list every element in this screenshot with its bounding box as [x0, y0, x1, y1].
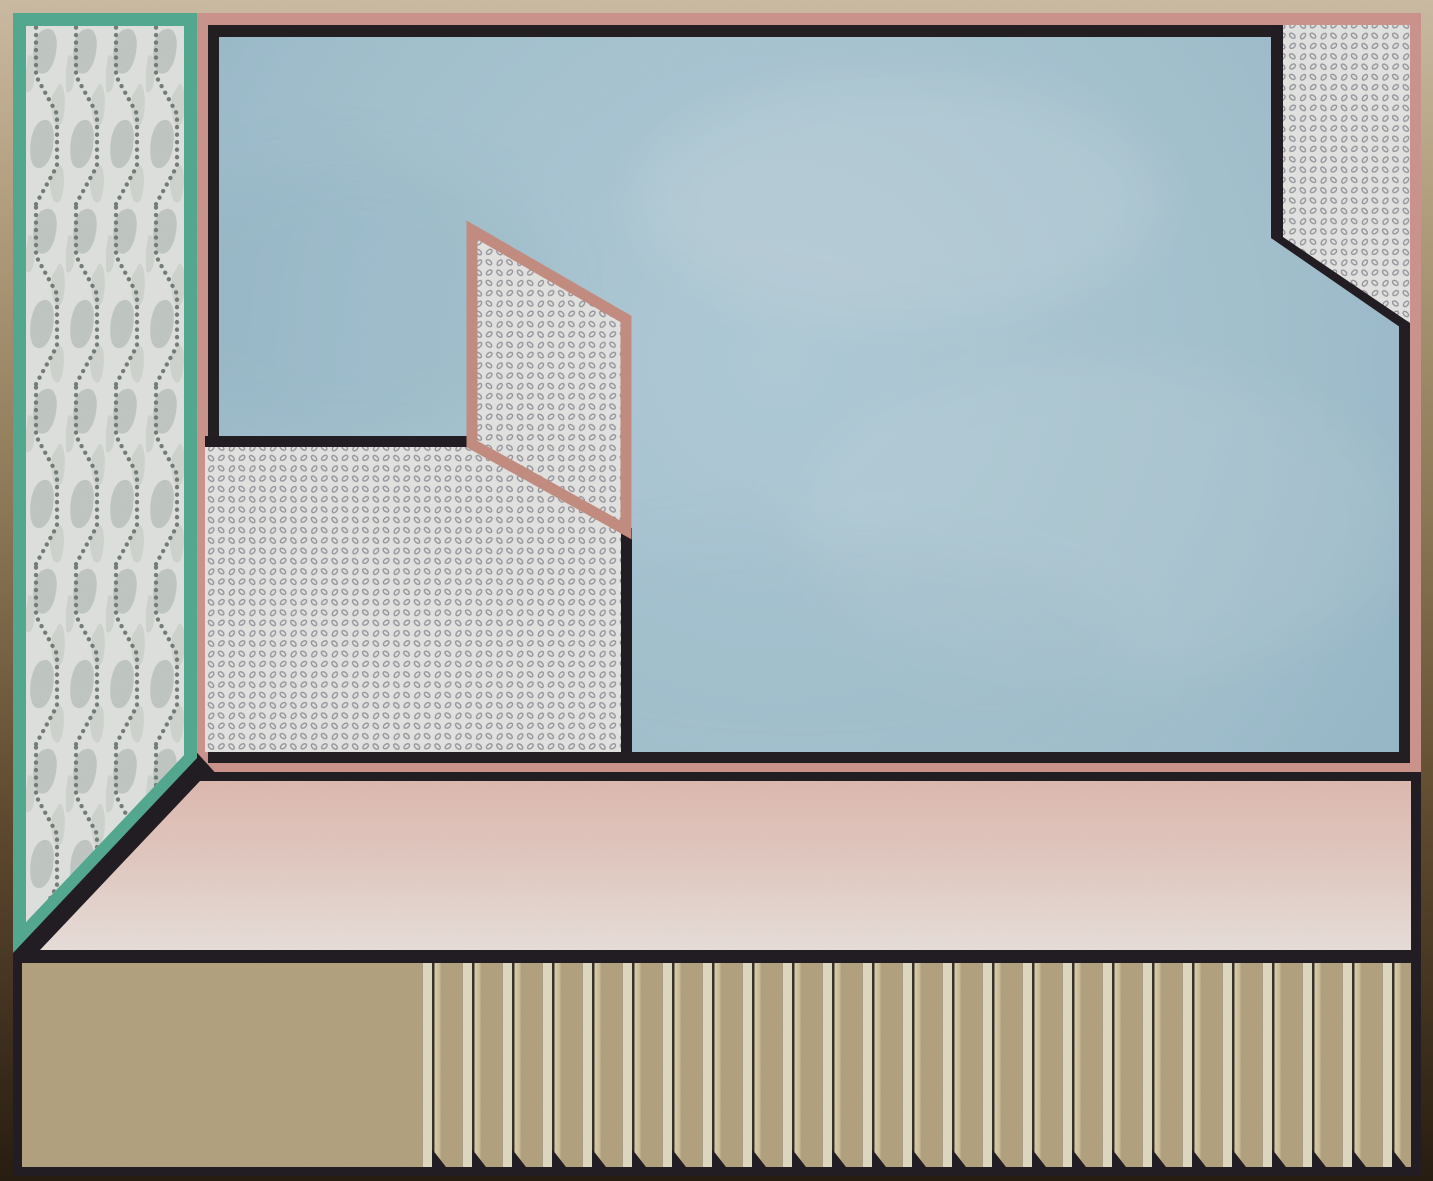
- artwork: [0, 0, 1433, 1181]
- artwork-canvas: [0, 0, 1433, 1181]
- paper-grain-texture: [0, 0, 1433, 1181]
